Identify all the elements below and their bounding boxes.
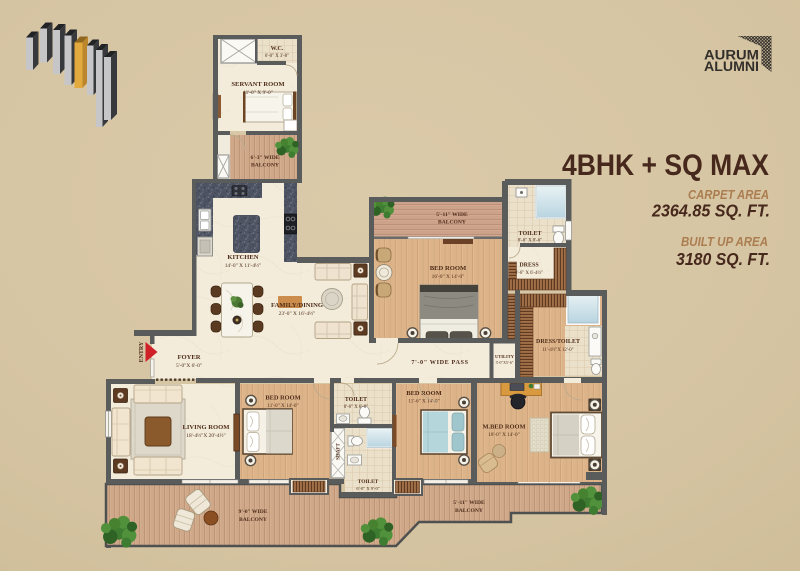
svg-text:DRESS/TOILET: DRESS/TOILET — [536, 339, 580, 345]
svg-text:KITCHEN: KITCHEN — [227, 254, 258, 261]
svg-text:FAMILY/DINING: FAMILY/DINING — [271, 302, 323, 309]
svg-text:BED ROOM: BED ROOM — [265, 395, 300, 402]
svg-text:8'-6" X 6'-0": 8'-6" X 6'-0" — [344, 405, 368, 410]
svg-text:11'-0" X 14'-0": 11'-0" X 14'-0" — [267, 403, 298, 409]
svg-text:6'-3" WIDE: 6'-3" WIDE — [251, 155, 280, 161]
svg-text:TOILET: TOILET — [358, 479, 379, 485]
svg-text:11'-4½"X 12'-0": 11'-4½"X 12'-0" — [542, 348, 573, 353]
svg-text:LIVING ROOM: LIVING ROOM — [182, 424, 230, 431]
svg-text:ENTRY: ENTRY — [139, 341, 145, 362]
svg-text:TOILET: TOILET — [345, 397, 367, 403]
svg-text:FOYER: FOYER — [177, 354, 200, 361]
svg-text:5'-11" WIDE: 5'-11" WIDE — [453, 500, 485, 506]
svg-text:5'-11" WIDE: 5'-11" WIDE — [436, 212, 468, 218]
svg-text:6'-0" X 9'-0": 6'-0" X 9'-0" — [356, 486, 379, 491]
svg-text:23'-0" X 16'-4½": 23'-0" X 16'-4½" — [279, 310, 316, 317]
svg-text:8'-6" X 8'-6": 8'-6" X 8'-6" — [518, 239, 542, 244]
svg-text:UTILITY: UTILITY — [495, 354, 515, 359]
svg-text:4BHK + SQ MAX: 4BHK + SQ MAX — [562, 149, 769, 182]
svg-text:BUILT UP AREA: BUILT UP AREA — [681, 235, 768, 249]
svg-text:18'-0" X 14'-0": 18'-0" X 14'-0" — [488, 432, 519, 438]
svg-text:SERVANT ROOM: SERVANT ROOM — [231, 81, 285, 88]
svg-text:5'-0"X 6'-0": 5'-0"X 6'-0" — [176, 363, 202, 369]
svg-text:SHAFT: SHAFT — [337, 443, 342, 460]
svg-text:18'-4½"X 20'-4½": 18'-4½"X 20'-4½" — [186, 432, 225, 439]
svg-text:11'-0" X 9'-0": 11'-0" X 9'-0" — [243, 90, 273, 96]
svg-text:3'-0"X5'-6": 3'-0"X5'-6" — [496, 361, 514, 365]
svg-text:BALCONY: BALCONY — [239, 517, 267, 523]
svg-text:BALCONY: BALCONY — [438, 220, 466, 226]
svg-text:TOILET: TOILET — [519, 231, 542, 237]
svg-text:11'-6" X 14'-0": 11'-6" X 14'-0" — [408, 399, 439, 405]
svg-text:2364.85 SQ. FT.: 2364.85 SQ. FT. — [651, 201, 770, 221]
svg-text:BALCONY: BALCONY — [251, 163, 279, 169]
svg-text:14'-0" X 11'-4½": 14'-0" X 11'-4½" — [225, 262, 262, 269]
svg-text:ALUMNI: ALUMNI — [704, 59, 759, 74]
svg-text:8'-6" X 6'-4½": 8'-6" X 6'-4½" — [515, 271, 543, 276]
svg-text:6'-0" X 3'-8": 6'-0" X 3'-8" — [265, 54, 289, 59]
svg-text:M.BED ROOM: M.BED ROOM — [483, 424, 526, 431]
svg-text:BED ROOM: BED ROOM — [430, 265, 467, 272]
svg-text:DRESS: DRESS — [519, 263, 539, 269]
svg-text:9'-0" WIDE: 9'-0" WIDE — [239, 509, 268, 515]
svg-text:W.C.: W.C. — [271, 46, 284, 52]
svg-text:16'-0" X 14'-0": 16'-0" X 14'-0" — [432, 274, 465, 280]
svg-text:BALCONY: BALCONY — [455, 508, 483, 514]
svg-text:3180 SQ. FT.: 3180 SQ. FT. — [676, 249, 770, 269]
svg-text:7'-0" WIDE PASS: 7'-0" WIDE PASS — [411, 359, 468, 366]
